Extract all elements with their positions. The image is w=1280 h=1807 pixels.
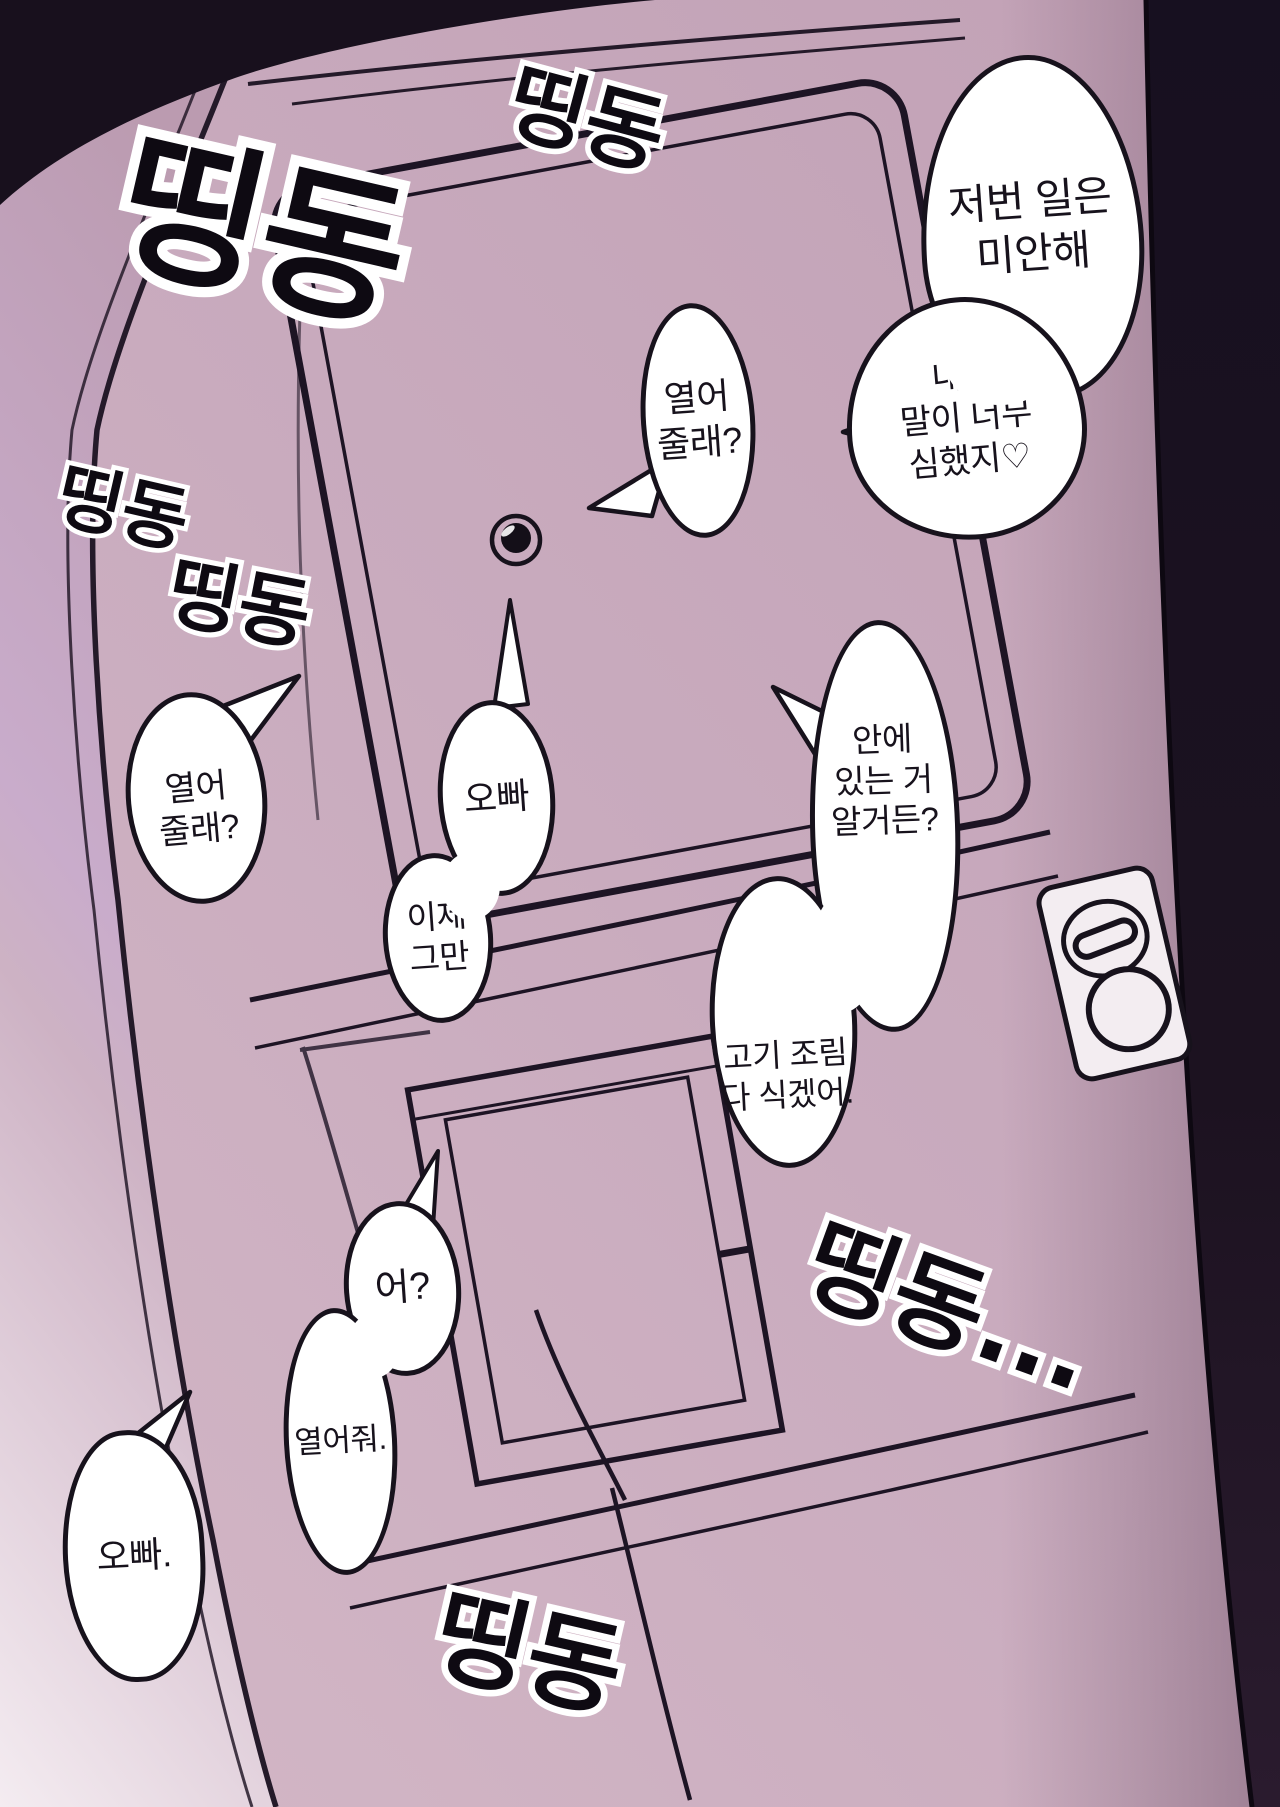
bubble-text: 열어줘. xyxy=(293,1420,387,1463)
bubble-text: 미안해 xyxy=(950,222,1117,285)
bubble-text: 오빠. xyxy=(96,1532,173,1580)
bubble-text: 줄래? xyxy=(158,805,241,854)
bubble-text: 그만 xyxy=(408,936,470,981)
bottom-rail-line xyxy=(335,1395,1135,1568)
lock-plate xyxy=(1036,865,1193,1082)
speech-bubble-open-request-center: 열어 줄래? xyxy=(633,299,763,541)
bubble-text: 다 식겠어. xyxy=(720,1072,854,1119)
bubble-text: 고기 조림 xyxy=(718,1033,852,1080)
bubble-join-patch xyxy=(442,852,500,920)
bubble-text: 열어 xyxy=(154,763,237,812)
sfx-dingdong-top-left: 띵동 띵동 xyxy=(98,74,433,363)
bubble-text: 있는 거 xyxy=(829,759,938,804)
speech-bubble-open-request-left: 열어 줄래? xyxy=(117,686,276,909)
bubble-join-patch xyxy=(348,1313,400,1378)
door-right-edge-line xyxy=(1146,0,1252,1807)
mail-slot-latch xyxy=(719,1249,749,1254)
bubble-join-patch xyxy=(946,325,1054,405)
keyhole-bezel xyxy=(1056,893,1154,984)
bubble-text: 안에 xyxy=(828,718,937,763)
bubble-text: 오빠 xyxy=(462,773,530,822)
bubble-join-patch xyxy=(812,892,876,1012)
door-knob xyxy=(1081,961,1177,1057)
peephole xyxy=(492,516,540,564)
speech-bubble-oppa-final: 오빠. xyxy=(57,1426,212,1685)
keyhole-icon xyxy=(1072,917,1138,960)
sfx-dingdong-top-center: 띵동 띵동 xyxy=(495,31,680,193)
comic-page: 저번 일은 미안해 내가 말이 너무 심했지♡ 열어 줄래? 열어 줄래? 오빠… xyxy=(0,0,1280,1807)
door-right-edge xyxy=(1146,0,1280,1807)
bubble-tail xyxy=(494,600,528,708)
bubble-text: 열어 xyxy=(653,373,741,423)
sfx-dingdong-bottom-center: 띵동 띵동 xyxy=(421,1551,639,1739)
sfx-dingdong-mid-left-lower: 띵동 띵동 xyxy=(159,529,321,666)
bubble-text: 알거든? xyxy=(830,800,939,845)
bubble-text: 줄래? xyxy=(656,418,744,468)
sfx-dingdong-bottom-right: 띵동... 띵동... xyxy=(787,1181,1117,1419)
bubble-text: 어? xyxy=(373,1263,431,1314)
